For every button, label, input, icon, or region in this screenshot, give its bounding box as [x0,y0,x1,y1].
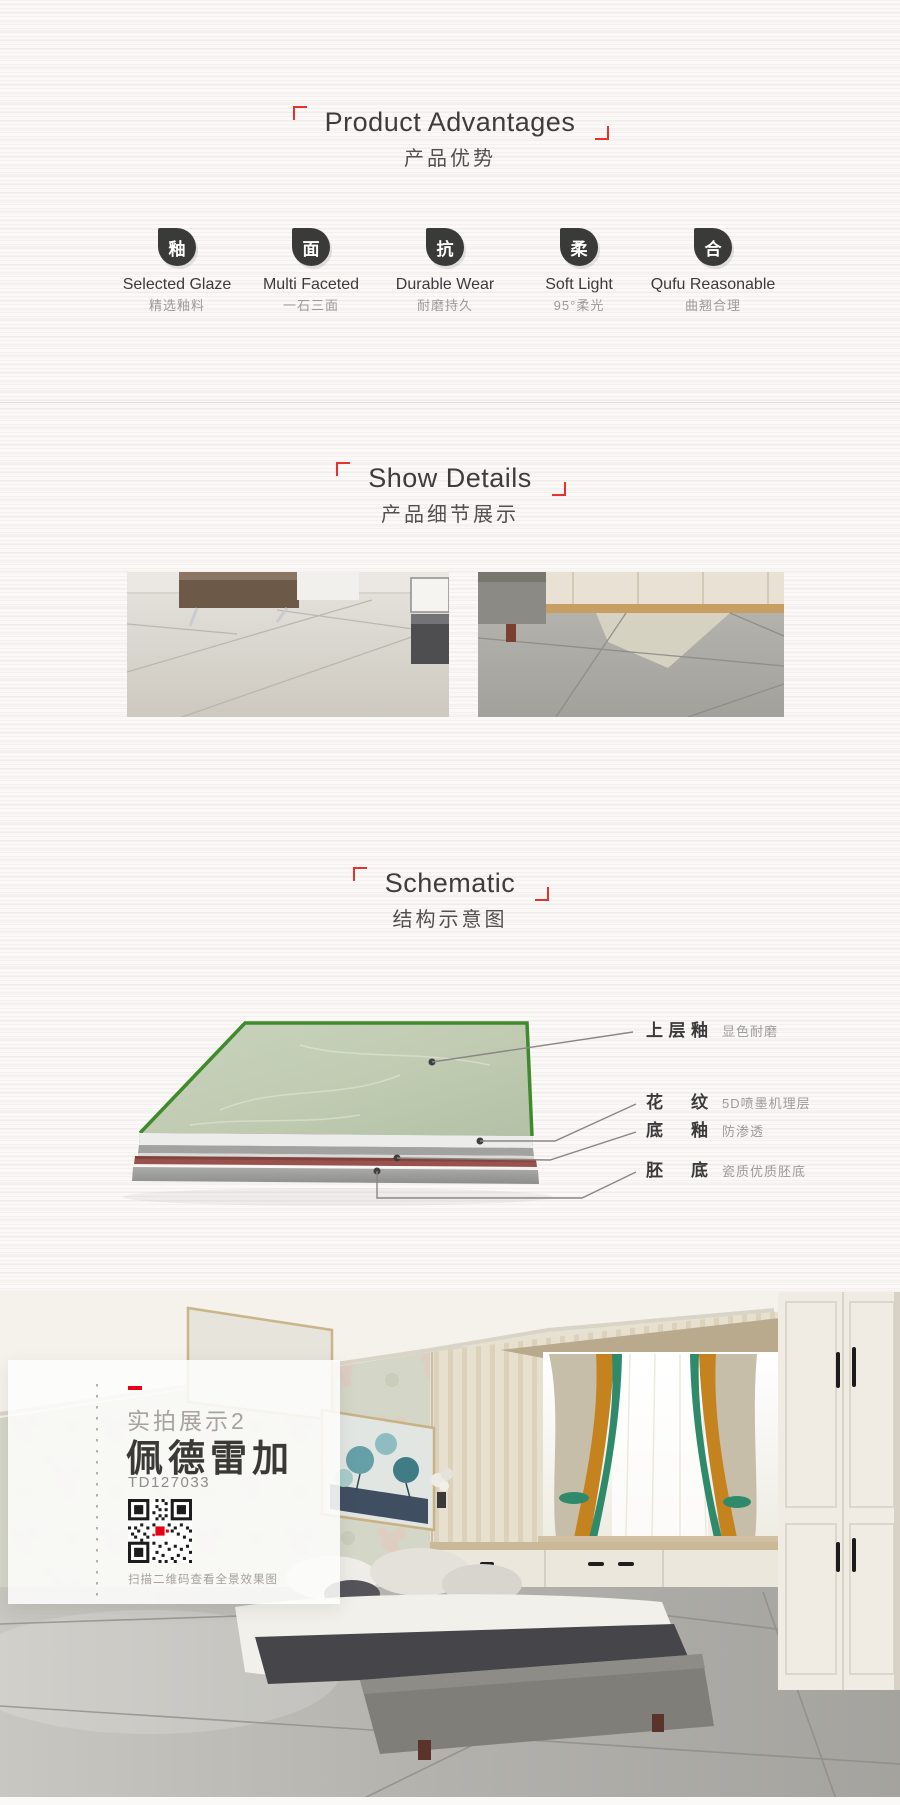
layer-name: 底釉 [646,1121,708,1141]
section-details-header: Show Details 产品细节展示 [0,460,900,529]
layer-desc: 显色耐磨 [722,1021,778,1040]
corner-bracket-bottom-right [552,482,566,496]
detail-photo-right [478,572,784,717]
layer-name: 花纹 [646,1093,708,1113]
feature-label-en: Soft Light [514,277,644,293]
feature-label-zh: 精选釉料 [112,299,242,312]
feature-qufu-reasonable: 合 Qufu Reasonable 曲翘合理 [648,228,778,312]
feature-selected-glaze: 釉 Selected Glaze 精选釉料 [112,228,242,312]
layer-name: 上层釉 [646,1021,708,1041]
corner-bracket-top-left [336,462,350,476]
layer-name: 胚底 [646,1161,708,1181]
advantages-title: Product Advantages [325,107,576,137]
feature-list: 釉 Selected Glaze 精选釉料 面 Multi Faceted 一石… [112,228,778,312]
layer-desc: 5D喷墨机理层 [722,1093,811,1112]
feature-label-en: Durable Wear [380,277,510,293]
soft-light-drop-icon: 柔 [560,228,598,266]
feature-label-en: Multi Faceted [246,277,376,293]
feature-label-zh: 耐磨持久 [380,299,510,312]
feature-label-zh: 一石三面 [246,299,376,312]
section-schematic-header: Schematic 结构示意图 [0,865,900,934]
layer-desc: 瓷质优质胚底 [722,1161,806,1180]
product-model: TD127033 [128,1474,210,1491]
layer-label-top-glaze: 上层釉 显色耐磨 [646,1021,778,1041]
section-title-en: Schematic [385,865,516,901]
wear-drop-icon: 抗 [426,228,464,266]
corner-bracket-top-left [293,106,307,120]
feature-label-zh: 曲翘合理 [648,299,778,312]
faceted-drop-icon: 面 [292,228,330,266]
feature-multi-faceted: 面 Multi Faceted 一石三面 [246,228,376,312]
feature-label-zh: 95°柔光 [514,299,644,312]
reasonable-drop-icon: 合 [694,228,732,266]
section-title-en: Show Details [368,460,532,496]
glaze-drop-icon: 釉 [158,228,196,266]
corner-bracket-bottom-right [595,126,609,140]
section-advantages-header: Product Advantages 产品优势 [0,104,900,173]
feature-durable-wear: 抗 Durable Wear 耐磨持久 [380,228,510,312]
feature-soft-light: 柔 Soft Light 95°柔光 [514,228,644,312]
section-title-en: Product Advantages [325,104,576,140]
qr-code [128,1499,192,1563]
vertical-tick-decoration [96,1384,98,1598]
divider-line [0,402,900,403]
schematic-title: Schematic [385,868,516,898]
detail-photo-left [127,572,449,717]
drop-icon-glyph: 合 [705,235,722,260]
corner-bracket-bottom-right [535,887,549,901]
layer-label-body: 胚底 瓷质优质胚底 [646,1161,806,1181]
qr-caption: 扫描二维码查看全景效果图 [128,1571,278,1587]
details-title: Show Details [368,463,532,493]
layer-label-base-glaze: 底釉 防渗透 [646,1121,764,1141]
drop-icon-glyph: 面 [303,235,320,260]
corner-bracket-top-left [353,867,367,881]
details-subtitle: 产品细节展示 [0,501,900,529]
feature-label-en: Selected Glaze [112,277,242,293]
product-detail-page: Product Advantages 产品优势 釉 Selected Glaze… [0,0,900,1805]
drop-icon-glyph: 柔 [571,235,588,260]
drop-icon-glyph: 抗 [437,235,454,260]
layer-desc: 防渗透 [722,1121,764,1140]
drop-icon-glyph: 釉 [169,235,186,260]
layer-label-pattern: 花纹 5D喷墨机理层 [646,1093,811,1113]
red-dash-accent [128,1386,142,1390]
advantages-subtitle: 产品优势 [0,145,900,173]
schematic-subtitle: 结构示意图 [0,906,900,934]
showcase-card: 实拍展示2 佩德雷加 TD127033 [8,1360,340,1604]
feature-label-en: Qufu Reasonable [648,277,778,293]
